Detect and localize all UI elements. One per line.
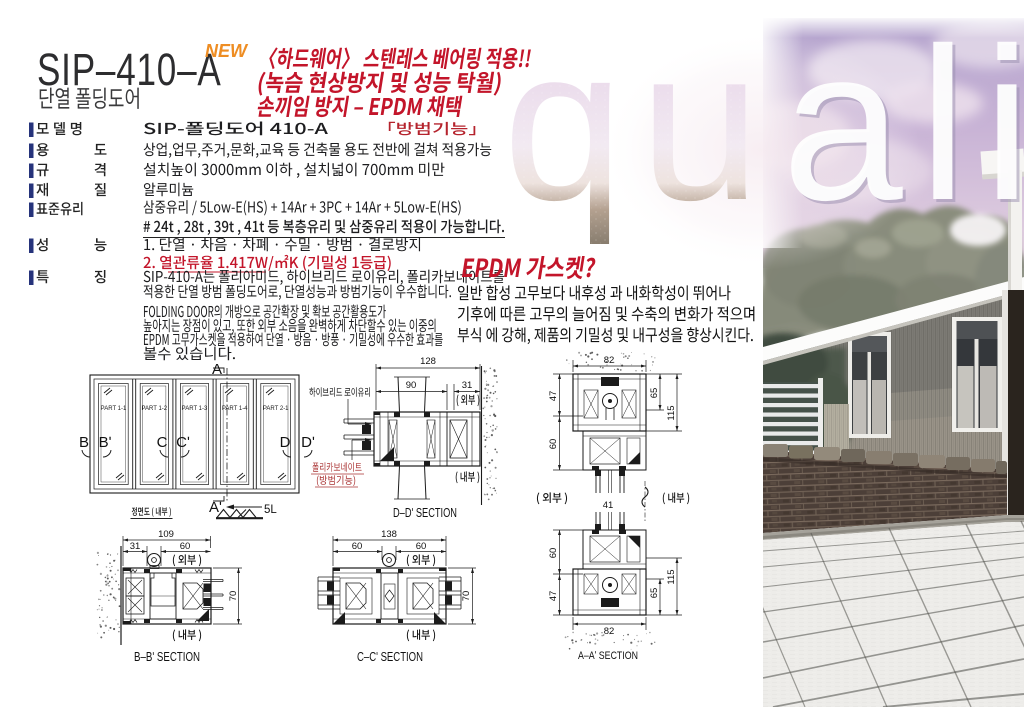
svg-text:60: 60 <box>416 541 427 552</box>
svg-text:60: 60 <box>180 541 191 552</box>
svg-text:65: 65 <box>649 588 660 599</box>
svg-text:A–Aʹ SECTION: A–Aʹ SECTION <box>578 650 638 662</box>
svg-text:PART 1-1: PART 1-1 <box>101 406 127 412</box>
svg-text:65: 65 <box>649 388 660 399</box>
svg-text:90: 90 <box>406 380 417 391</box>
svg-text:31: 31 <box>130 541 141 552</box>
svg-text:47: 47 <box>548 391 559 402</box>
svg-text:Dʹ: Dʹ <box>301 434 315 451</box>
svg-text:alit: alit <box>782 3 1024 245</box>
svg-text:82: 82 <box>604 626 615 637</box>
svg-text:Bʹ: Bʹ <box>99 434 112 451</box>
svg-text:B: B <box>79 434 89 451</box>
svg-text:B–Bʹ SECTION: B–Bʹ SECTION <box>134 650 200 664</box>
svg-text:47: 47 <box>548 591 559 602</box>
svg-text:115: 115 <box>666 569 677 584</box>
svg-text:NEW: NEW <box>205 41 249 61</box>
svg-text:PART 1-4: PART 1-4 <box>222 406 248 412</box>
svg-text:70: 70 <box>228 591 239 602</box>
svg-text:115: 115 <box>666 405 677 420</box>
svg-text:SIP–410–A: SIP–410–A <box>37 44 222 95</box>
svg-text:82: 82 <box>604 355 615 366</box>
svg-text:D–Dʹ SECTION: D–Dʹ SECTION <box>393 506 457 520</box>
svg-text:D: D <box>280 434 291 451</box>
svg-text:41: 41 <box>603 500 614 511</box>
svg-text:128: 128 <box>420 356 436 367</box>
svg-text:138: 138 <box>381 529 397 540</box>
svg-text:60: 60 <box>352 541 363 552</box>
svg-text:C–Cʹ SECTION: C–Cʹ SECTION <box>357 650 423 664</box>
svg-text:70: 70 <box>461 591 472 602</box>
svg-text:109: 109 <box>158 529 174 540</box>
svg-text:31: 31 <box>462 380 473 391</box>
svg-text:PART 1-2: PART 1-2 <box>141 406 167 412</box>
svg-text:5L: 5L <box>264 504 277 516</box>
svg-text:60: 60 <box>548 439 559 450</box>
svg-text:qu: qu <box>503 3 776 245</box>
svg-text:60: 60 <box>548 548 559 559</box>
svg-text:PART 1-3: PART 1-3 <box>182 406 208 412</box>
svg-text:PART 2-1: PART 2-1 <box>263 406 289 412</box>
